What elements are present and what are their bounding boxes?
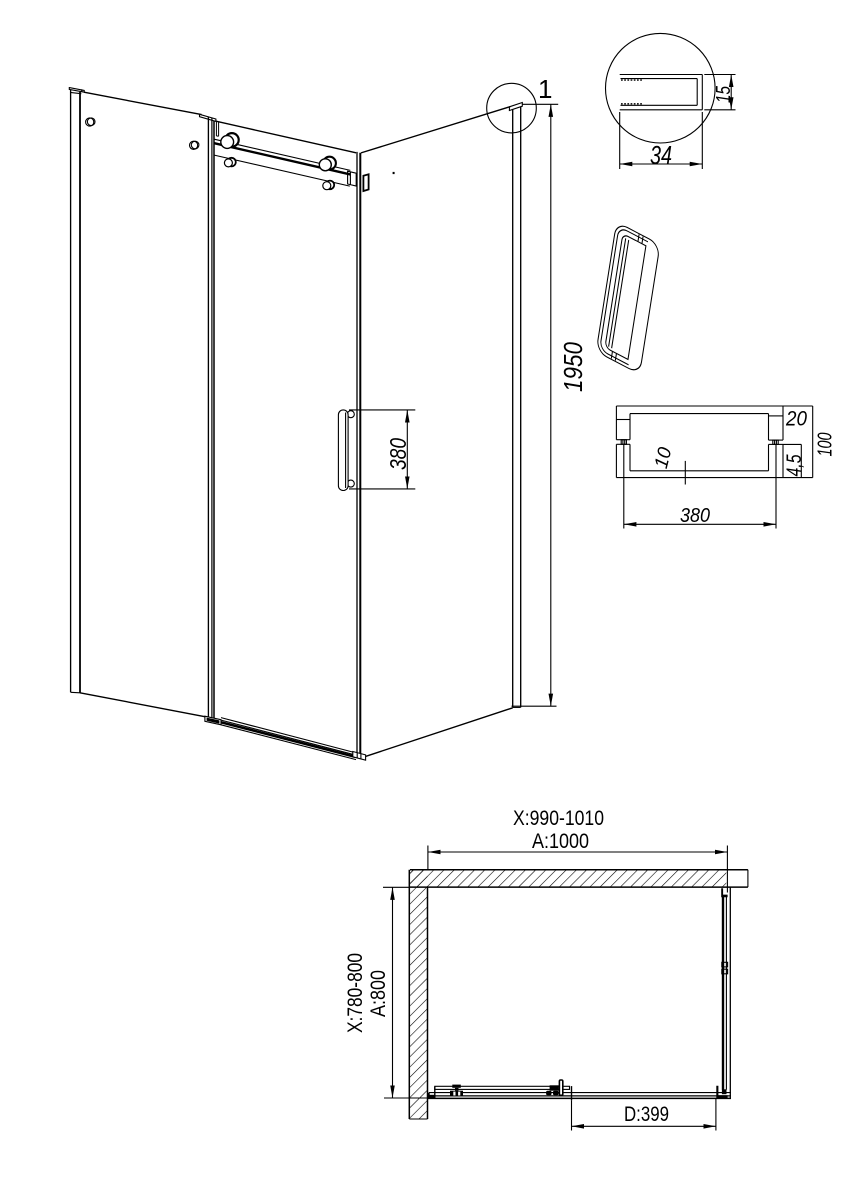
svg-text:A:1000: A:1000 — [532, 830, 589, 853]
svg-text:15: 15 — [713, 85, 735, 103]
svg-text:34: 34 — [650, 140, 672, 170]
svg-text:380: 380 — [680, 505, 710, 527]
svg-text:4,5: 4,5 — [783, 454, 806, 476]
svg-text:D:399: D:399 — [624, 1103, 669, 1126]
svg-text:X:990-1010: X:990-1010 — [513, 807, 604, 830]
svg-text:380: 380 — [385, 438, 411, 470]
svg-text:20: 20 — [785, 408, 807, 431]
svg-text:1950: 1950 — [558, 342, 588, 392]
svg-text:10: 10 — [651, 445, 677, 471]
svg-text:1: 1 — [538, 74, 552, 104]
svg-text:A:800: A:800 — [367, 970, 390, 1017]
svg-text:100: 100 — [814, 432, 837, 456]
svg-text:X:780-800: X:780-800 — [344, 953, 367, 1033]
